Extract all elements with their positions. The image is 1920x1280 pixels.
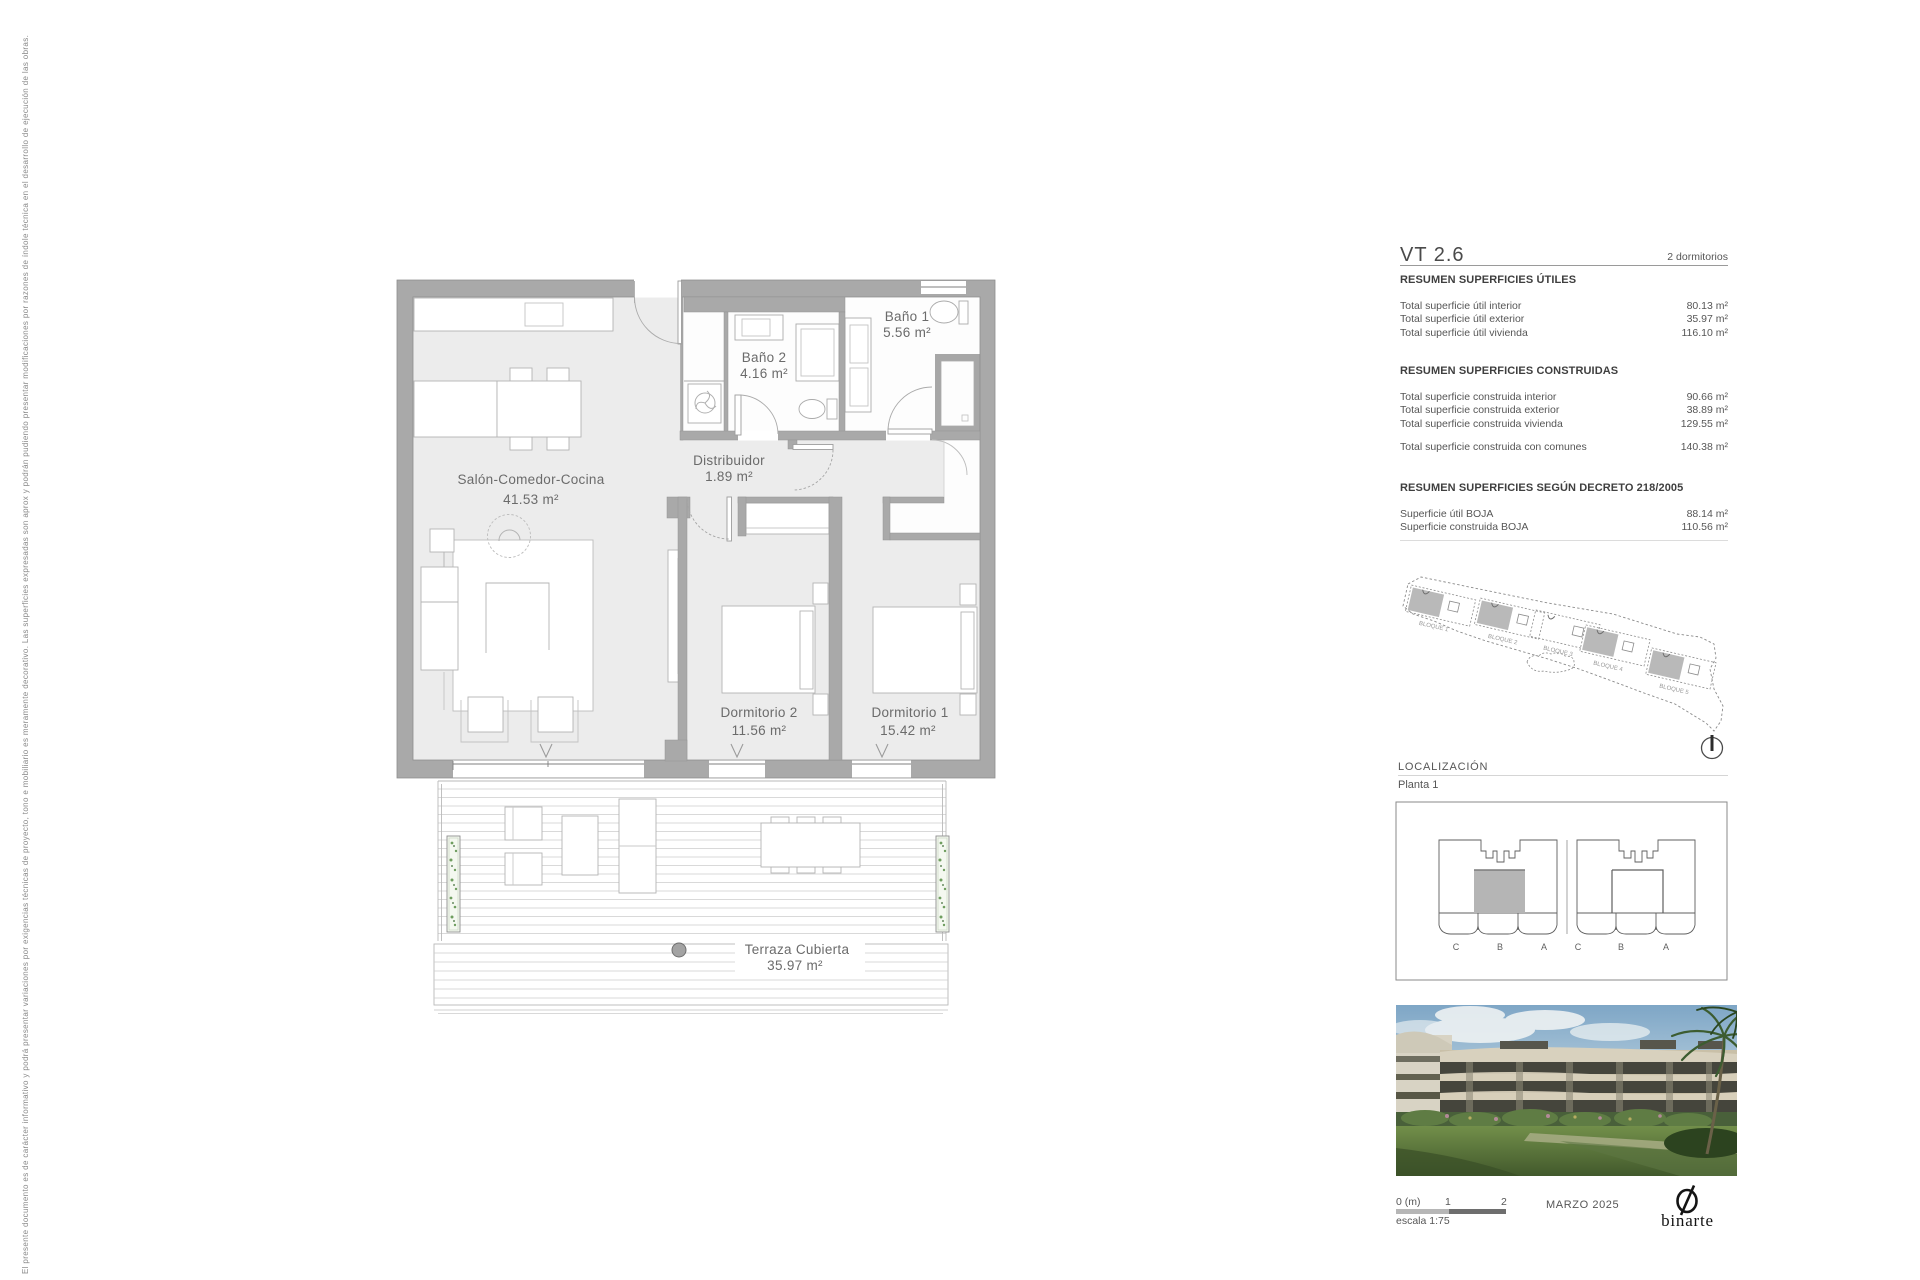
svg-text:BLOQUE 4: BLOQUE 4	[1593, 661, 1624, 674]
svg-text:11.56 m²: 11.56 m²	[732, 723, 787, 738]
svg-text:Dormitorio 1: Dormitorio 1	[871, 705, 948, 720]
svg-text:BLOQUE 1: BLOQUE 1	[1418, 621, 1449, 634]
svg-text:B: B	[1497, 942, 1503, 952]
svg-text:41.53 m²: 41.53 m²	[503, 492, 559, 507]
svg-text:1.89 m²: 1.89 m²	[705, 469, 753, 484]
svg-text:Salón-Comedor-Cocina: Salón-Comedor-Cocina	[457, 472, 604, 487]
svg-text:Distribuidor: Distribuidor	[693, 453, 765, 468]
svg-text:Baño 2: Baño 2	[742, 350, 787, 365]
svg-text:5.56 m²: 5.56 m²	[883, 325, 931, 340]
svg-text:B: B	[1618, 942, 1624, 952]
svg-text:A: A	[1663, 942, 1669, 952]
svg-text:BLOQUE 2: BLOQUE 2	[1487, 634, 1518, 647]
svg-text:35.97 m²: 35.97 m²	[767, 958, 823, 973]
svg-text:BLOQUE 5: BLOQUE 5	[1659, 684, 1690, 697]
svg-text:C: C	[1575, 942, 1582, 952]
svg-text:C: C	[1453, 942, 1460, 952]
svg-text:Baño 1: Baño 1	[885, 309, 930, 324]
svg-text:15.42 m²: 15.42 m²	[880, 723, 936, 738]
svg-text:A: A	[1541, 942, 1547, 952]
svg-text:Terraza Cubierta: Terraza Cubierta	[745, 942, 850, 957]
svg-text:4.16 m²: 4.16 m²	[740, 366, 788, 381]
svg-text:Dormitorio 2: Dormitorio 2	[720, 705, 797, 720]
